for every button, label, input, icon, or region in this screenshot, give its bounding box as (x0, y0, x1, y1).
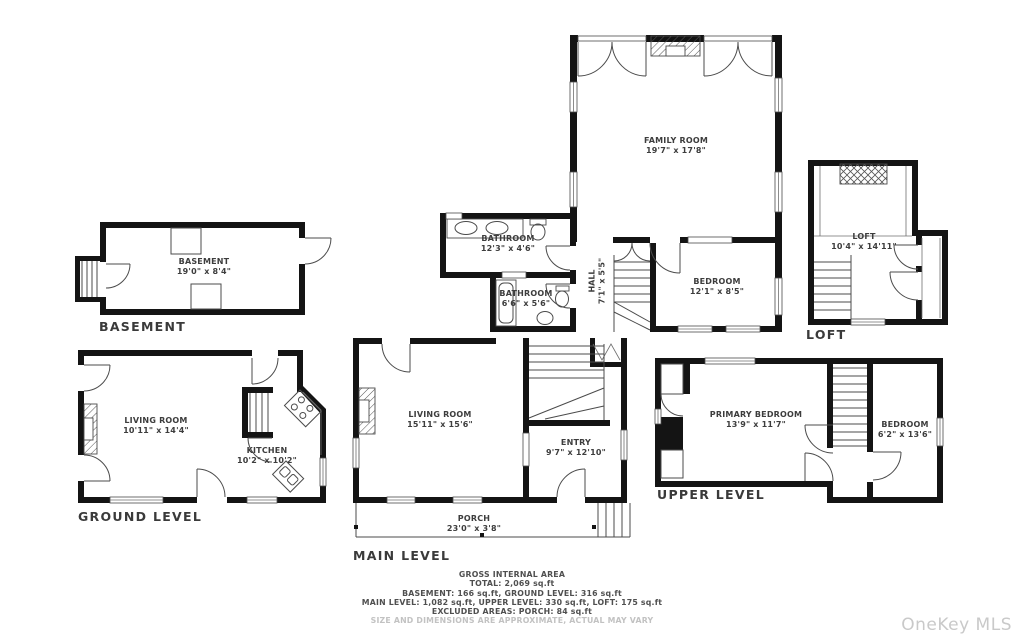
room-name: BATHROOM (499, 289, 552, 299)
ground-stairs-icon (250, 393, 268, 432)
room-dims: 19'0" x 8'4" (177, 267, 231, 277)
room-name: FAMILY ROOM (644, 136, 708, 146)
loft-door-icons (890, 245, 918, 300)
basement-entry-stairs-icon (82, 261, 97, 297)
room-dims: 9'7" x 12'10" (546, 448, 606, 458)
room-dims: 12'1" x 8'5" (690, 287, 744, 297)
room-label-main-bedroom: BEDROOM 12'1" x 8'5" (690, 277, 744, 296)
kitchen-sink-icon (273, 461, 304, 492)
room-label-basement: BASEMENT 19'0" x 8'4" (177, 257, 231, 276)
room-dims: 12'3" x 4'6" (481, 244, 535, 254)
loft-skylight-icon (840, 164, 887, 184)
room-label-porch: PORCH 23'0" x 3'8" (447, 514, 501, 533)
level-label-main: MAIN LEVEL (353, 549, 450, 563)
room-name: BASEMENT (177, 257, 231, 267)
room-name: KITCHEN (237, 446, 297, 456)
room-name: LIVING ROOM (123, 416, 189, 426)
room-dims: 19'7" x 17'8" (644, 146, 708, 156)
room-dims: 10'11" x 14'4" (123, 426, 189, 436)
watermark-onekey-mls: OneKey MLS (901, 615, 1012, 635)
main-fireplace-icon (359, 388, 375, 434)
room-dims: 10'2" x 10'2" (237, 456, 297, 466)
ground-walls (78, 350, 326, 503)
loft-window-icon (851, 319, 885, 325)
room-name: LOFT (831, 232, 897, 242)
area-summary: GROSS INTERNAL AREA TOTAL: 2,069 sq.ft B… (0, 570, 1024, 626)
room-dims: 13'9" x 11'7" (710, 420, 802, 430)
room-dims: 6'2" x 13'6" (878, 430, 932, 440)
level-label-upper: UPPER LEVEL (657, 488, 765, 502)
upper-stairs-icon (833, 368, 867, 446)
room-label-family-room: FAMILY ROOM 19'7" x 17'8" (644, 136, 708, 155)
summary-line-1: BASEMENT: 166 sq.ft, GROUND LEVEL: 316 s… (0, 589, 1024, 598)
room-dims: 23'0" x 3'8" (447, 524, 501, 534)
ground-level-floorplan (78, 350, 326, 503)
room-label-loft: LOFT 10'4" x 14'11" (831, 232, 897, 251)
room-name: HALL (588, 258, 598, 304)
room-label-ground-living-room: LIVING ROOM 10'11" x 14'4" (123, 416, 189, 435)
room-label-entry: ENTRY 9'7" x 12'10" (546, 438, 606, 457)
room-name: PRIMARY BEDROOM (710, 410, 802, 420)
summary-title: GROSS INTERNAL AREA (0, 570, 1024, 579)
room-label-primary-bedroom: PRIMARY BEDROOM 13'9" x 11'7" (710, 410, 802, 429)
summary-line-2: MAIN LEVEL: 1,082 sq.ft, UPPER LEVEL: 33… (0, 598, 1024, 607)
room-label-bathroom-2: BATHROOM 6'6" x 5'6" (499, 289, 552, 308)
room-dims: 10'4" x 14'11" (831, 242, 897, 252)
room-label-kitchen: KITCHEN 10'2" x 10'2" (237, 446, 297, 465)
level-label-loft: LOFT (806, 328, 846, 342)
room-dims: 6'6" x 5'6" (499, 299, 552, 309)
room-name: ENTRY (546, 438, 606, 448)
room-label-bathroom-1: BATHROOM 12'3" x 4'6" (481, 234, 535, 253)
room-label-hall: HALL 7'1" x 5'5" (588, 258, 607, 304)
hall-stairs-icon (614, 255, 650, 332)
room-name: BATHROOM (481, 234, 535, 244)
kitchen-stove-icon (284, 390, 321, 427)
room-label-main-living-room: LIVING ROOM 15'11" x 15'6" (407, 410, 473, 429)
room-label-upper-bedroom: BEDROOM 6'2" x 13'6" (878, 420, 932, 439)
room-name: PORCH (447, 514, 501, 524)
room-dims: 15'11" x 15'6" (407, 420, 473, 430)
floorplan-page: FAMILY ROOM 19'7" x 17'8" BEDROOM 12'1" … (0, 0, 1024, 640)
room-dims: 7'1" x 5'5" (597, 258, 607, 304)
level-label-basement: BASEMENT (99, 320, 186, 334)
summary-total: TOTAL: 2,069 sq.ft (0, 579, 1024, 588)
upper-door-icons (661, 394, 901, 481)
bath-passage-opening (502, 272, 526, 278)
room-name: BEDROOM (690, 277, 744, 287)
ground-chimney-icon (84, 404, 97, 454)
loft-stairs-icon (814, 255, 851, 319)
main-lower-walls (353, 338, 627, 503)
summary-disclaimer: SIZE AND DIMENSIONS ARE APPROXIMATE, ACT… (0, 616, 1024, 625)
level-label-ground: GROUND LEVEL (78, 510, 202, 524)
room-name: LIVING ROOM (407, 410, 473, 420)
summary-line-3: EXCLUDED AREAS: PORCH: 84 sq.ft (0, 607, 1024, 616)
family-room-chimney-icon (651, 36, 700, 56)
room-name: BEDROOM (878, 420, 932, 430)
